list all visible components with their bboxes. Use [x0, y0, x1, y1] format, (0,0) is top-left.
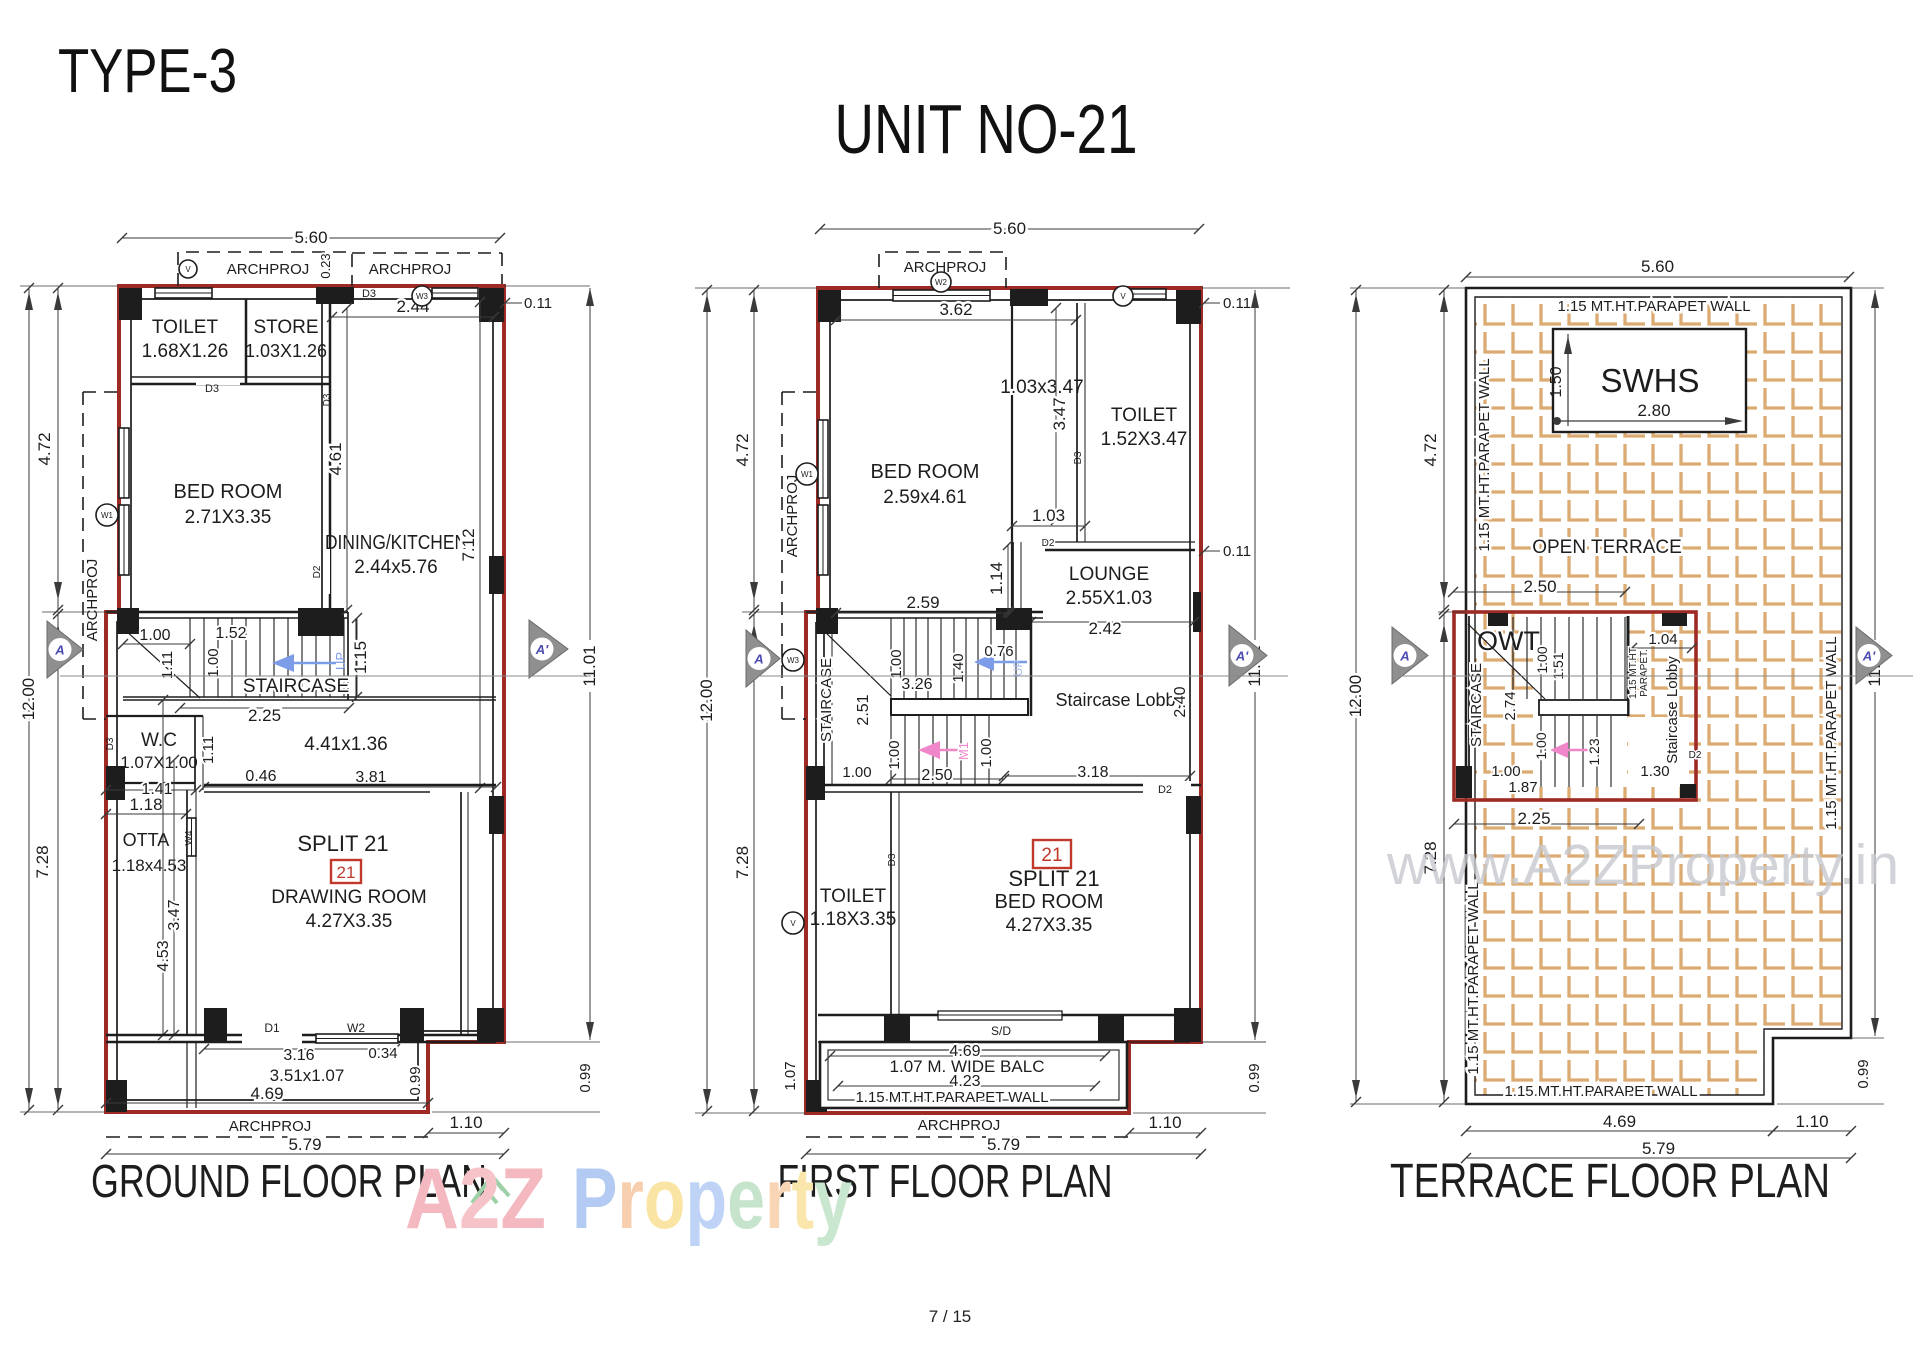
svg-text:7 / 15: 7 / 15 — [929, 1307, 972, 1326]
svg-text:3.47: 3.47 — [1050, 397, 1069, 430]
svg-text:1.00: 1.00 — [1491, 763, 1520, 780]
svg-text:0.99: 0.99 — [407, 1066, 424, 1095]
svg-text:D3: D3 — [322, 393, 333, 406]
svg-text:5.79: 5.79 — [288, 1135, 321, 1154]
svg-text:1.00: 1.00 — [205, 648, 222, 677]
svg-text:A': A' — [1862, 649, 1876, 664]
svg-text:TERRACE FLOOR PLAN: TERRACE FLOOR PLAN — [1390, 1155, 1830, 1208]
svg-text:TYPE-3: TYPE-3 — [58, 37, 237, 106]
svg-text:UP: UP — [1011, 660, 1025, 677]
svg-text:1.68X1.26: 1.68X1.26 — [142, 341, 229, 362]
svg-text:3.47: 3.47 — [166, 899, 183, 930]
svg-text:4.69: 4.69 — [1603, 1112, 1636, 1131]
svg-text:1.15 MT.HT.PARAPET WALL: 1.15 MT.HT.PARAPET WALL — [1476, 358, 1493, 551]
svg-text:W1: W1 — [101, 511, 114, 520]
svg-text:ARCHPROJ: ARCHPROJ — [229, 1118, 312, 1135]
svg-text:7.12: 7.12 — [459, 528, 478, 561]
svg-text:ARCHPROJ: ARCHPROJ — [227, 261, 310, 278]
svg-text:1.14: 1.14 — [987, 562, 1006, 595]
svg-text:3.16: 3.16 — [283, 1047, 314, 1064]
svg-text:4.61: 4.61 — [326, 442, 345, 475]
svg-text:2.71X3.35: 2.71X3.35 — [185, 507, 272, 528]
svg-text:BED ROOM: BED ROOM — [995, 891, 1104, 913]
svg-text:1.00: 1.00 — [139, 627, 170, 644]
svg-text:www.A2ZProperty.in: www.A2ZProperty.in — [1386, 833, 1899, 897]
svg-text:SWHS: SWHS — [1601, 362, 1700, 399]
svg-text:BED ROOM: BED ROOM — [174, 481, 283, 503]
svg-text:A: A — [753, 652, 763, 667]
svg-text:2.50: 2.50 — [1523, 577, 1556, 596]
svg-text:1.10: 1.10 — [1795, 1112, 1828, 1131]
svg-text:1.03x3.47: 1.03x3.47 — [1000, 377, 1083, 398]
svg-text:4.41x1.36: 4.41x1.36 — [304, 734, 387, 755]
svg-text:S/D: S/D — [991, 1024, 1011, 1038]
svg-text:2.40: 2.40 — [1172, 686, 1189, 717]
svg-text:3.51x1.07: 3.51x1.07 — [270, 1066, 345, 1085]
svg-text:W2: W2 — [347, 1021, 365, 1035]
svg-text:D2: D2 — [312, 565, 323, 578]
svg-text:0.34: 0.34 — [368, 1045, 397, 1062]
svg-text:4.23: 4.23 — [949, 1073, 980, 1090]
svg-text:1.04: 1.04 — [1648, 631, 1677, 648]
svg-text:1.03: 1.03 — [1032, 506, 1065, 525]
svg-text:0.99: 0.99 — [577, 1063, 594, 1092]
svg-text:V: V — [185, 265, 191, 274]
svg-text:4.53: 4.53 — [155, 940, 172, 971]
svg-text:W3: W3 — [787, 656, 800, 665]
svg-text:V: V — [790, 919, 796, 928]
svg-text:W2: W2 — [935, 278, 948, 287]
svg-text:A: A — [1399, 649, 1409, 664]
svg-text:D1: D1 — [264, 1021, 280, 1035]
svg-text:1.18X3.35: 1.18X3.35 — [810, 909, 897, 930]
svg-text:3.18: 3.18 — [1077, 764, 1108, 781]
svg-text:Staircase Lobby: Staircase Lobby — [1055, 690, 1184, 710]
svg-text:1.00: 1.00 — [842, 764, 871, 781]
svg-text:LOUNGE: LOUNGE — [1069, 564, 1149, 585]
svg-text:W4: W4 — [184, 830, 195, 845]
svg-text:12.00: 12.00 — [19, 678, 38, 721]
svg-text:D2: D2 — [1042, 538, 1055, 549]
svg-text:1.07: 1.07 — [782, 1061, 799, 1090]
svg-text:2.80: 2.80 — [1637, 401, 1670, 420]
svg-text:OWT: OWT — [1477, 626, 1540, 656]
svg-text:2.59x4.61: 2.59x4.61 — [883, 487, 966, 508]
svg-text:TOILET: TOILET — [820, 886, 887, 907]
svg-text:2.42: 2.42 — [1088, 619, 1121, 638]
svg-text:D3: D3 — [362, 288, 376, 300]
svg-text:M1: M1 — [956, 742, 971, 760]
svg-text:1.15 MT.HT: 1.15 MT.HT — [1628, 647, 1639, 699]
svg-text:STORE: STORE — [253, 317, 318, 338]
svg-text:TOILET: TOILET — [1111, 405, 1178, 426]
svg-text:2.59: 2.59 — [906, 593, 939, 612]
svg-text:1.00: 1.00 — [1534, 646, 1550, 673]
svg-text:2.74: 2.74 — [1502, 691, 1519, 720]
svg-text:D3: D3 — [105, 737, 116, 750]
svg-text:1.15: 1.15 — [351, 641, 370, 674]
svg-text:4.27X3.35: 4.27X3.35 — [1006, 915, 1093, 936]
svg-text:D3: D3 — [205, 383, 219, 395]
svg-text:1.52: 1.52 — [215, 625, 246, 642]
svg-text:D3: D3 — [1073, 451, 1084, 464]
svg-text:5.60: 5.60 — [1641, 257, 1674, 276]
svg-text:5.60: 5.60 — [993, 219, 1026, 238]
svg-text:1.52X3.47: 1.52X3.47 — [1101, 429, 1188, 450]
svg-text:ARCHPROJ: ARCHPROJ — [369, 261, 452, 278]
svg-text:3.26: 3.26 — [901, 676, 932, 693]
svg-text:11.01: 11.01 — [580, 645, 599, 686]
svg-text:7.28: 7.28 — [33, 845, 52, 878]
svg-text:4.27X3.35: 4.27X3.35 — [306, 911, 393, 932]
svg-text:UNIT NO-21: UNIT NO-21 — [835, 90, 1138, 168]
svg-text:2.25: 2.25 — [1517, 809, 1550, 828]
svg-text:0.46: 0.46 — [245, 768, 276, 785]
svg-text:21: 21 — [1041, 845, 1062, 866]
svg-text:2.51: 2.51 — [855, 694, 872, 725]
svg-text:OPEN TERRACE: OPEN TERRACE — [1532, 537, 1682, 558]
svg-text:0.11: 0.11 — [524, 295, 552, 312]
svg-text:7.28: 7.28 — [733, 846, 752, 879]
svg-text:5.60: 5.60 — [294, 228, 327, 247]
svg-text:0.99: 0.99 — [1246, 1063, 1263, 1092]
svg-text:1.15 MT.HT.PARAPET WALL: 1.15 MT.HT.PARAPET WALL — [1823, 636, 1840, 829]
svg-text:Staircase Lobby: Staircase Lobby — [1664, 656, 1681, 764]
svg-text:1.18x4.53: 1.18x4.53 — [112, 856, 187, 875]
svg-text:0.11: 0.11 — [1223, 543, 1251, 560]
svg-text:1.11: 1.11 — [200, 736, 217, 764]
svg-text:1.15 MT.HT.PARAPET WALL: 1.15 MT.HT.PARAPET WALL — [855, 1089, 1048, 1106]
svg-text:STAIRCASE: STAIRCASE — [243, 676, 349, 697]
svg-text:1.03X1.26: 1.03X1.26 — [245, 341, 327, 361]
svg-text:1.07X1.00: 1.07X1.00 — [120, 753, 198, 772]
svg-text:A2Z: A2Z — [405, 1151, 546, 1247]
svg-text:4.72: 4.72 — [35, 432, 54, 465]
svg-text:1.18: 1.18 — [129, 795, 162, 814]
svg-text:V: V — [1120, 292, 1126, 301]
svg-text:1.10: 1.10 — [1148, 1113, 1181, 1132]
svg-text:DRAWING ROOM: DRAWING ROOM — [271, 887, 427, 908]
svg-text:1.11: 1.11 — [159, 651, 176, 679]
svg-text:ARCHPROJ: ARCHPROJ — [784, 475, 801, 558]
svg-text:ARCHPROJ: ARCHPROJ — [84, 559, 101, 642]
svg-text:1.40: 1.40 — [950, 653, 967, 682]
svg-text:12.00: 12.00 — [1346, 675, 1365, 718]
svg-text:A': A' — [1235, 649, 1249, 664]
svg-text:PARAPET.: PARAPET. — [1639, 649, 1650, 697]
svg-text:D2: D2 — [1158, 784, 1172, 796]
svg-text:SPLIT 21: SPLIT 21 — [297, 831, 388, 856]
svg-text:4.72: 4.72 — [1421, 433, 1440, 466]
svg-text:2.50: 2.50 — [921, 767, 952, 784]
svg-text:DINING/KITCHEN: DINING/KITCHEN — [325, 532, 467, 554]
svg-text:D3: D3 — [887, 853, 898, 866]
svg-text:BED ROOM: BED ROOM — [871, 461, 980, 483]
svg-text:1.50: 1.50 — [1548, 366, 1565, 397]
svg-text:2.44x5.76: 2.44x5.76 — [354, 557, 437, 578]
svg-text:D2: D2 — [1689, 750, 1702, 761]
svg-text:1.00: 1.00 — [888, 649, 905, 678]
svg-text:1.15 MT.HT.PARAPET WALL: 1.15 MT.HT.PARAPET WALL — [1557, 298, 1750, 315]
svg-text:21: 21 — [337, 863, 356, 882]
svg-text:W.C: W.C — [141, 730, 177, 751]
svg-text:1.10: 1.10 — [449, 1113, 482, 1132]
svg-text:W1: W1 — [801, 470, 814, 479]
svg-text:1.87: 1.87 — [1508, 779, 1537, 796]
svg-text:ARCHPROJ: ARCHPROJ — [918, 1117, 1001, 1134]
svg-text:5.79: 5.79 — [987, 1135, 1020, 1154]
svg-text:1.23: 1.23 — [1586, 738, 1602, 765]
svg-text:2.25: 2.25 — [248, 706, 281, 725]
svg-text:1.30: 1.30 — [1640, 763, 1669, 780]
svg-text:0.99: 0.99 — [1855, 1059, 1872, 1088]
svg-text:1.15 MT.HT.PARAPET WALL: 1.15 MT.HT.PARAPET WALL — [1465, 881, 1482, 1074]
svg-text:0.11: 0.11 — [1223, 295, 1251, 312]
svg-text:0.23: 0.23 — [318, 253, 333, 278]
svg-text:1.15 MT.HT.PARAPET WALL: 1.15 MT.HT.PARAPET WALL — [1504, 1083, 1697, 1100]
svg-text:2.55X1.03: 2.55X1.03 — [1066, 588, 1153, 609]
svg-text:STAIRCASE: STAIRCASE — [818, 658, 835, 742]
svg-text:TOILET: TOILET — [152, 317, 219, 338]
svg-text:UP: UP — [333, 652, 348, 670]
svg-text:A': A' — [535, 642, 549, 657]
svg-text:A: A — [54, 643, 64, 658]
svg-text:1.00: 1.00 — [886, 740, 903, 769]
svg-text:1.00: 1.00 — [1533, 732, 1549, 759]
svg-text:0.76: 0.76 — [984, 643, 1013, 660]
svg-text:SPLIT 21: SPLIT 21 — [1008, 866, 1099, 891]
svg-text:1.00: 1.00 — [978, 738, 995, 767]
svg-text:4.72: 4.72 — [733, 433, 752, 466]
svg-text:4.69: 4.69 — [250, 1084, 283, 1103]
svg-text:W3: W3 — [416, 292, 429, 301]
svg-text:12.00: 12.00 — [697, 679, 716, 722]
svg-text:3.81: 3.81 — [355, 769, 386, 786]
svg-text:Property: Property — [572, 1151, 852, 1247]
svg-text:OTTA: OTTA — [123, 830, 170, 850]
svg-text:3.62: 3.62 — [939, 300, 972, 319]
